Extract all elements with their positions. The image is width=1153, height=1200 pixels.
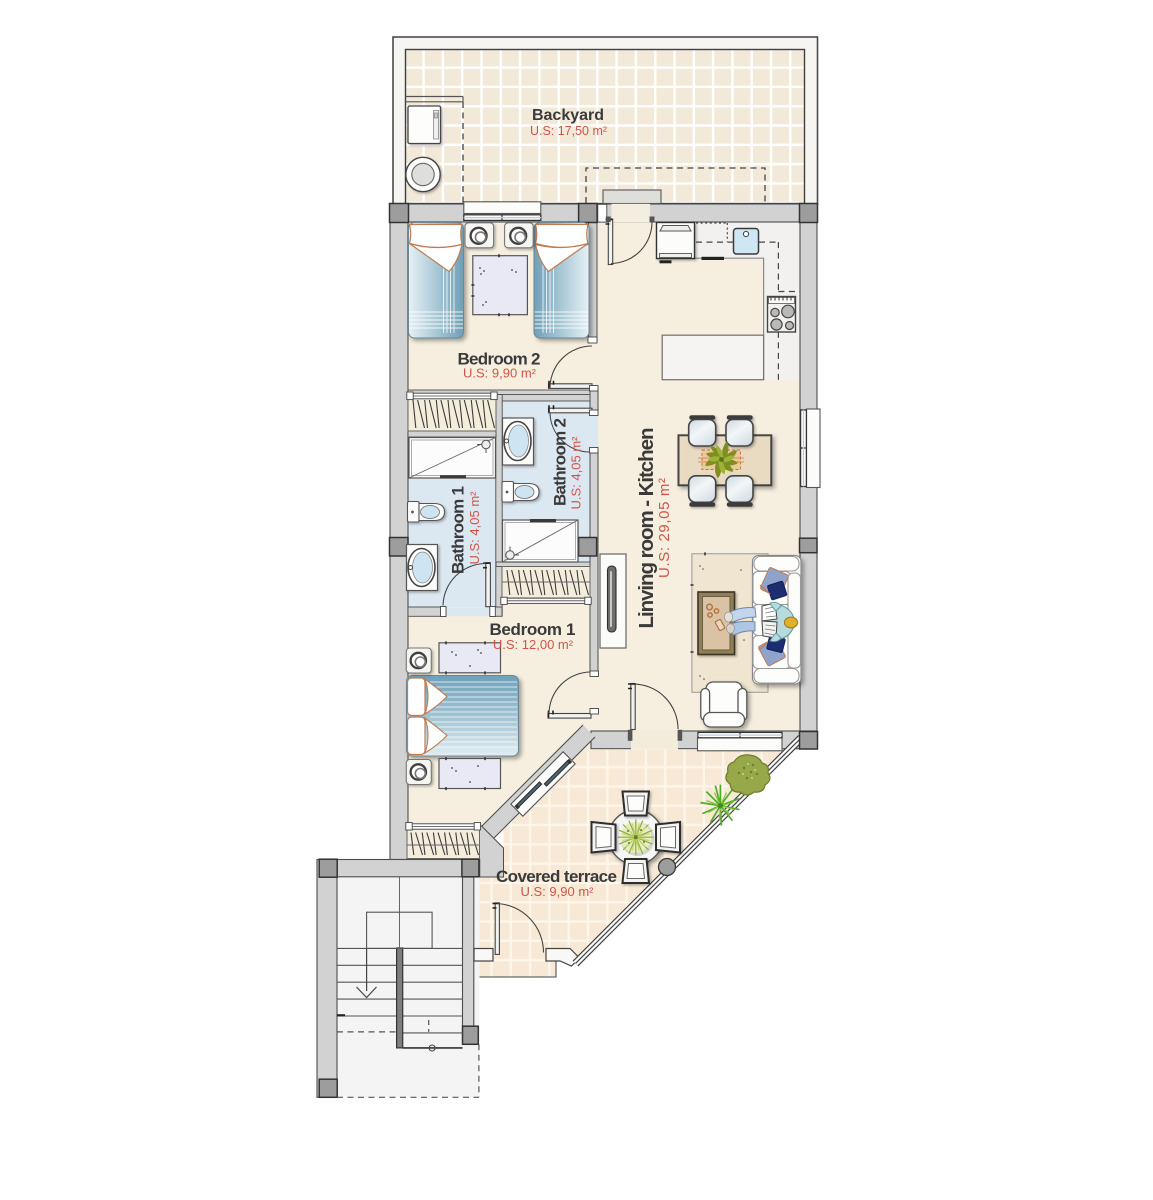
svg-text:U.S: 29,05 m²: U.S: 29,05 m² (656, 478, 673, 578)
svg-text:U.S: 9,90 m²: U.S: 9,90 m² (463, 366, 537, 381)
svg-text:Linving room - Kitchen: Linving room - Kitchen (635, 428, 658, 629)
svg-text:Backyard: Backyard (532, 107, 604, 124)
svg-text:U.S: 9,90 m²: U.S: 9,90 m² (521, 884, 595, 899)
svg-text:Bathroom 1: Bathroom 1 (449, 486, 468, 574)
svg-text:U.S: 12,00 m²: U.S: 12,00 m² (493, 637, 574, 652)
svg-text:U.S: 17,50 m²: U.S: 17,50 m² (530, 124, 607, 138)
svg-text:Bathroom 2: Bathroom 2 (551, 418, 570, 506)
svg-text:U.S: 4,05 m²: U.S: 4,05 m² (569, 436, 584, 510)
svg-text:U.S: 4,05 m²: U.S: 4,05 m² (467, 491, 482, 565)
